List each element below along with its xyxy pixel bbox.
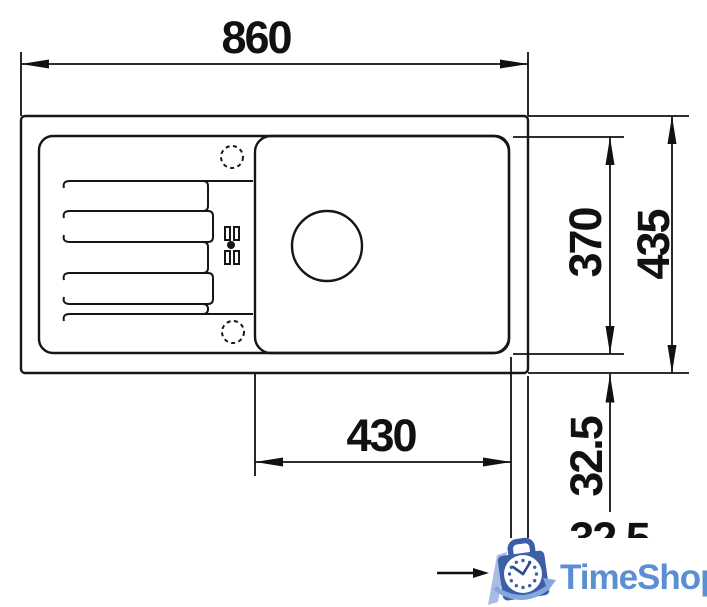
dim-370-label: 370	[560, 207, 611, 277]
arrow-left-icon	[21, 60, 49, 69]
arrow-up-icon	[606, 375, 615, 403]
dim-860-label: 860	[221, 12, 291, 63]
dimensions: 860 370 435 430	[21, 12, 689, 564]
overflow-symbol	[225, 227, 239, 264]
dim-370: 370	[560, 137, 615, 354]
arrow-down-icon	[668, 345, 677, 373]
dim-860: 860	[21, 12, 528, 116]
sink-basin-outline	[39, 136, 509, 353]
arrow-up-icon	[606, 137, 615, 165]
technical-drawing-page: 860 370 435 430	[0, 0, 707, 607]
arrow-down-icon	[606, 326, 615, 354]
sink-top-view	[21, 116, 528, 373]
dim-430-label: 430	[346, 410, 416, 461]
arrow-right-icon	[483, 458, 511, 467]
sink-rim-outline	[21, 116, 528, 373]
dim-430: 430	[255, 357, 528, 538]
arrow-up-icon	[668, 116, 677, 144]
drain-hole	[292, 211, 362, 281]
dim-32-5: 32.5	[561, 374, 615, 512]
arrow-left-icon	[255, 458, 283, 467]
dim-32-5-label: 32.5	[561, 416, 612, 497]
tap-hole-top	[221, 146, 243, 168]
tap-hole-bottom	[222, 321, 244, 343]
timeshop-logo-text: TimeShop	[560, 558, 707, 597]
arrow-right-icon	[500, 60, 528, 69]
dim-435-label: 435	[628, 209, 679, 279]
dim-435: 435	[628, 116, 679, 373]
